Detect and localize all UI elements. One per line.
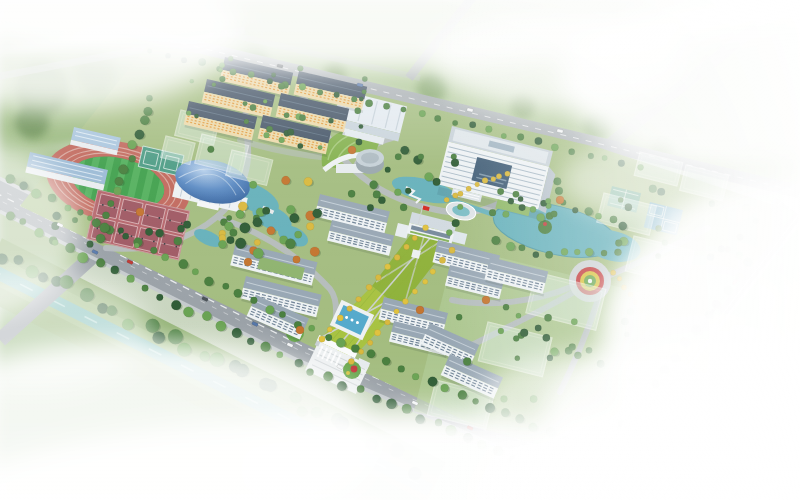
right-fog-gradient xyxy=(0,0,800,500)
scene-canvas xyxy=(0,0,800,500)
campus-aerial-rendering xyxy=(0,0,800,500)
